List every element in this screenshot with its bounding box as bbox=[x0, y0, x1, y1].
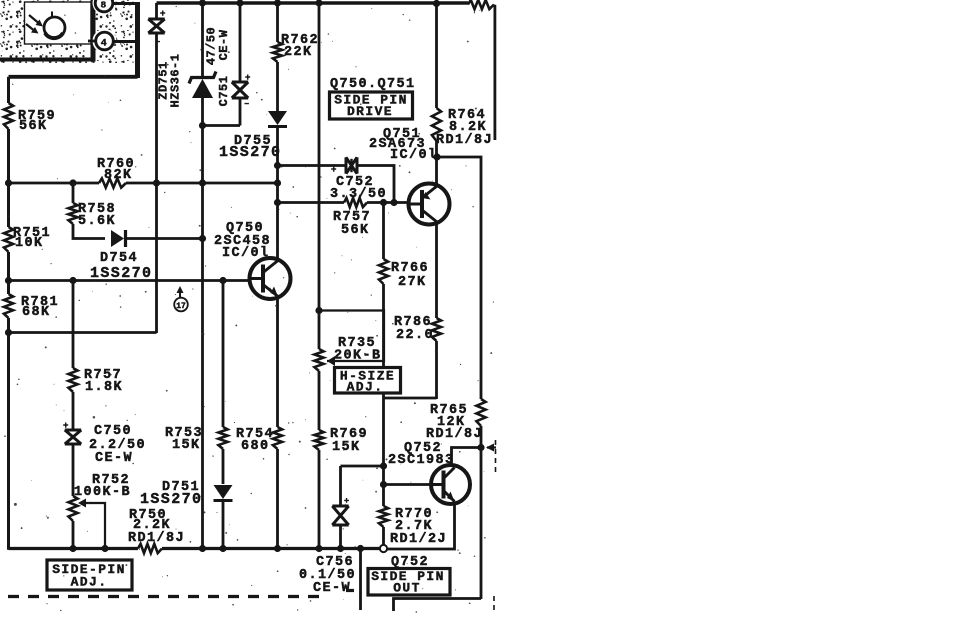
svg-text:C750: C750 bbox=[94, 424, 132, 439]
svg-text:82K: 82K bbox=[104, 168, 133, 183]
svg-text:R766: R766 bbox=[391, 261, 429, 276]
svg-text:RD1/8J: RD1/8J bbox=[426, 427, 483, 442]
svg-text:15K: 15K bbox=[332, 440, 361, 455]
svg-text:56K: 56K bbox=[341, 223, 370, 238]
svg-text:1.8K: 1.8K bbox=[85, 380, 123, 395]
svg-text:RD1/8J: RD1/8J bbox=[128, 531, 185, 546]
svg-text:2SC1983: 2SC1983 bbox=[388, 453, 455, 468]
svg-text:+: + bbox=[245, 73, 252, 83]
svg-text:100K-B: 100K-B bbox=[74, 485, 131, 500]
svg-text:1SS270: 1SS270 bbox=[140, 491, 202, 508]
svg-text:D754: D754 bbox=[100, 251, 138, 266]
svg-text:68K: 68K bbox=[22, 305, 51, 320]
svg-text:+: + bbox=[344, 496, 351, 506]
svg-text:RD1/8J: RD1/8J bbox=[436, 133, 493, 148]
svg-text:IC/0l: IC/0l bbox=[222, 246, 270, 261]
svg-text:CE-W: CE-W bbox=[95, 451, 133, 466]
svg-text:HZS36-1: HZS36-1 bbox=[169, 54, 183, 108]
svg-text:20K-B: 20K-B bbox=[334, 349, 382, 364]
svg-text:+: + bbox=[63, 421, 70, 431]
svg-text:Q750.Q751: Q750.Q751 bbox=[330, 77, 416, 92]
svg-text:CE-W: CE-W bbox=[313, 581, 351, 596]
svg-text:17: 17 bbox=[176, 302, 186, 311]
svg-text:22K: 22K bbox=[284, 45, 313, 60]
svg-text:5.6K: 5.6K bbox=[78, 214, 116, 229]
svg-text:56K: 56K bbox=[19, 119, 48, 134]
svg-text:IC/0l: IC/0l bbox=[390, 148, 438, 163]
svg-text:DRIVE: DRIVE bbox=[347, 104, 393, 119]
svg-text:680: 680 bbox=[241, 439, 270, 454]
svg-text:27K: 27K bbox=[398, 275, 427, 290]
svg-text:1SS270: 1SS270 bbox=[219, 144, 281, 161]
svg-text:C751: C751 bbox=[217, 76, 231, 107]
svg-text:8: 8 bbox=[100, 0, 107, 11]
svg-text:RD1/2J: RD1/2J bbox=[390, 532, 447, 547]
svg-text:15K: 15K bbox=[172, 438, 201, 453]
svg-text:+: + bbox=[331, 165, 338, 175]
svg-text:CE-W: CE-W bbox=[217, 29, 231, 60]
svg-text:10K: 10K bbox=[15, 236, 44, 251]
svg-text:+: + bbox=[160, 9, 167, 19]
svg-text:–: – bbox=[244, 99, 251, 109]
svg-text:OUT: OUT bbox=[393, 581, 421, 596]
svg-text:22.0: 22.0 bbox=[396, 328, 434, 343]
svg-text:ADJ.: ADJ. bbox=[71, 575, 108, 590]
svg-text:4: 4 bbox=[101, 39, 108, 50]
svg-text:ADJ.: ADJ. bbox=[347, 380, 384, 395]
